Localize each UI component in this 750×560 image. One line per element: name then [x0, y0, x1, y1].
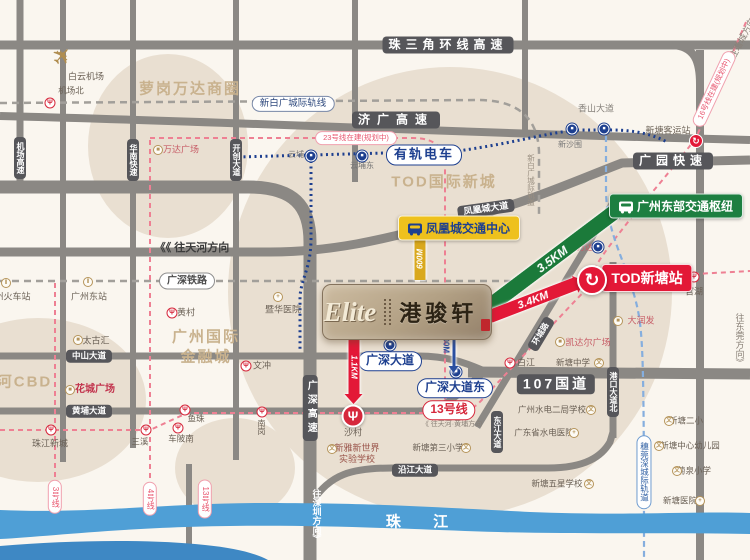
project-logo-en: Elite [324, 297, 377, 328]
poi-gz-shuidian-erju-school: 广州水电二局学校 [518, 405, 586, 416]
rt-mart-icon: ■ [613, 316, 623, 326]
poi-yunpu: 云埔 [288, 150, 304, 160]
pill-guangshen-ave: 广深大道 [358, 351, 422, 371]
bus-icon [408, 223, 422, 233]
zone-gz-intl-finance-city: 广州国际 金融城 [172, 328, 240, 367]
zone-luogang-wanda: 萝岗万达商圈 [139, 79, 241, 99]
tod-xintang-station-icon: ↻ [577, 265, 607, 295]
gz-east-station-icon: ‖ [83, 277, 93, 287]
station-yuzhu: Ψ [180, 405, 191, 416]
wuxing-school-icon: 文 [584, 479, 594, 489]
tram-stop-west: ■ [567, 124, 578, 135]
poi-huangcun: 黄村 [177, 307, 195, 318]
arrow-600m-label: 600M [416, 249, 425, 269]
gz-railway-station-icon: ‖ [1, 278, 11, 288]
pill-line13: 13号线 [422, 400, 475, 420]
juquan-primary-icon: 文 [672, 466, 682, 476]
road-kaichuang-ave: 开创大道 [230, 139, 242, 181]
road-gangkou-ave-north: 港口大道北 [607, 367, 619, 417]
xinya-school-icon: 文 [327, 444, 337, 454]
road-jiguang-expwy: 济广高速 [352, 112, 440, 129]
station-chebeinan: Ψ [173, 423, 184, 434]
taikoo-hui-icon: ■ [73, 335, 83, 345]
station-sanxi: Ψ [141, 425, 152, 436]
poi-wanda-plaza: 万达广场 [163, 144, 199, 155]
road-guangyuan-expwy: 广园快速 [633, 153, 713, 170]
road-xiangshan-ave: 香山大道 [578, 102, 614, 115]
road-zhusanjiao-ring-expwy: 珠三角环线高速 [382, 37, 513, 54]
pill-xinbaiguang-intercity: 新白广城际轨线 [252, 96, 335, 112]
poi-xinshawei: 新沙围 [558, 140, 582, 150]
road-yanjiang-ave: 沿江大道 [392, 464, 438, 477]
xintang-hospital-icon: + [695, 496, 705, 506]
pill-line23-planned: 23号线在建(规划中) [315, 131, 397, 145]
station-jichangbei: Ψ [45, 98, 56, 109]
station-shacun: Ψ [342, 405, 365, 428]
poi-xinya-new-world-school: 新雅新世界 实验学校 [334, 443, 379, 466]
poi-sanxi: 三溪 [131, 437, 148, 448]
xintang-bus-terminal-icon: ↻ [689, 134, 703, 148]
poi-gz-railway-station: 广州火车站 [0, 291, 31, 302]
stop-guangshen-ave: ■ [385, 340, 396, 351]
zone-tianhe-cbd: 天河CBD [0, 372, 52, 392]
pill-line13-south: 13号线 [198, 480, 212, 519]
poi-kaidaer-plaza: 凯达尔广场 [565, 337, 610, 348]
poi-xintang-hospital: 新塘医院 [663, 496, 697, 507]
poi-huacheng-square: 花城广场 [75, 384, 115, 397]
project-logo: Elite 港骏轩 [322, 284, 492, 340]
road-zhongshan-ave: 中山大道 [66, 350, 112, 363]
hub-fenghuangcheng-transport-center: 凤凰城交通中心 [398, 216, 520, 241]
note-line13-direction: 《 往天河·黄埔方向 [422, 419, 482, 429]
road-jichang-expwy: 机场高速 [14, 137, 26, 179]
road-g107: 107国道 [517, 374, 595, 394]
xintang-no2-primary-icon: 文 [664, 416, 674, 426]
kindergarten-icon: 文 [654, 441, 664, 451]
road-huanan-expwy: 华南快速 [127, 139, 139, 181]
poi-xintang-wuxing-school: 新塘五星学校 [531, 479, 582, 490]
tram-stop-east: ■ [599, 124, 610, 135]
poi-xintang-kindergarten: 新塘中心幼儿园 [660, 441, 720, 452]
poi-jihua-hospital: 暨华医院 [265, 304, 301, 315]
arrow-600m: 600M [415, 238, 426, 280]
poi-gz-east-station: 广州东站 [71, 291, 107, 302]
tram-stop-yunpu: ■ [306, 151, 317, 162]
hub-fenghuangcheng-transport-center-label: 凤凰城交通中心 [426, 220, 510, 237]
hub-gz-east-transport-hub-label: 广州东部交通枢纽 [637, 198, 733, 215]
pill-suiwanshen-intercity: 穗莞深城际轨道 [636, 435, 651, 509]
hub-tod-xintang-station-label: TOD新塘站 [611, 268, 682, 288]
poi-baiyun-airport: 白云机场 [68, 71, 104, 82]
poi-jichangbei: 机场北 [58, 86, 84, 97]
poi-yunpudong: 云埔东 [350, 161, 374, 171]
poi-taikoo-hui: 太古汇 [82, 335, 109, 346]
huacheng-square-icon: ■ [65, 385, 75, 395]
pill-guangshen-railway: 广深铁路 [159, 273, 215, 290]
wanda-plaza-icon: ■ [153, 145, 163, 155]
kaidaer-plaza-icon: ■ [555, 337, 565, 347]
logo-seal [481, 319, 490, 331]
jihua-hospital-icon: + [273, 292, 283, 302]
station-huangcun: Ψ [167, 308, 178, 319]
poi-xintang-middle-school: 新塘中学 [556, 358, 590, 369]
hub-tod-xintang-station: TOD新塘站 [601, 264, 692, 292]
poi-rt-mart: 大润发 [627, 315, 654, 326]
station-wenchong: Ψ [241, 361, 252, 372]
poi-guangdong-shuidian-hospital: 广东省水电医院 [514, 428, 574, 439]
poi-yuzhu: 鱼珠 [187, 414, 204, 425]
pill-line3: 3号线 [48, 480, 62, 514]
dir-to-dongguan: 往东莞方向》 [734, 313, 747, 367]
zone-tod-intl-newtown: TOD国际新城 [391, 172, 496, 192]
shuidian-erju-school-icon: 文 [586, 405, 596, 415]
pill-line4: 4号线 [143, 482, 157, 516]
poi-shacun: 沙村 [344, 427, 362, 438]
poi-wenchong: 文冲 [253, 360, 271, 371]
xintang-no3-primary-icon: 文 [461, 443, 471, 453]
dir-to-shenzhen: 往深圳方向》 [311, 489, 324, 543]
poi-xintang-no3-primary: 新塘第三小学 [412, 443, 463, 454]
poi-xintang-bus-terminal: 新塘客运站 [645, 125, 690, 136]
poi-xintang-no2-primary: 新塘二小 [669, 416, 703, 427]
pill-guangshen-ave-east: 广深大道东 [417, 378, 493, 398]
poi-chebeinan: 车陂南 [168, 434, 194, 445]
road-guangshen-expwy: 广深高速 [303, 375, 318, 441]
road-dongjiang-ave: 东江大道 [491, 411, 503, 453]
station-nangang: Ψ [257, 407, 268, 418]
xintang-middle-school-icon: 文 [594, 358, 604, 368]
hub-gz-east-transport-hub: 广州东部交通枢纽 [609, 194, 743, 219]
arrow-1-1km-label: 1.1KM [350, 355, 359, 379]
river-label: 珠 江 [386, 511, 462, 532]
location-map: 珠 江 Elite 港骏轩 萝岗万达商圈TOD国际新城广州国际 金融城天河CBD… [0, 0, 750, 560]
dir-to-tianhe: 《《 往天河方向 [155, 239, 230, 255]
station-baijiang: Ψ [505, 358, 516, 369]
poi-nangang: 南岗 [256, 419, 266, 435]
note-xinbaiguang-rail: 新白广城际轨道 [526, 154, 537, 207]
poi-zhujiang-newtown: 珠江新城 [32, 438, 68, 449]
poi-juquan-primary: 菊泉小学 [677, 466, 711, 477]
tram-stop-yunpudong: ■ [357, 151, 368, 162]
bus-icon [619, 201, 633, 211]
project-logo-cn: 港骏轩 [399, 296, 477, 328]
station-zhujiang-newtown: Ψ [46, 425, 57, 436]
poi-baijiang: 白江 [517, 357, 535, 368]
pill-tram: 有轨电车 [386, 145, 462, 166]
shuidian-hospital-icon: + [569, 428, 579, 438]
station-xintang-wanda: ■ [593, 242, 604, 253]
road-huangpu-ave: 黄埔大道 [66, 405, 112, 418]
logo-divider [384, 299, 391, 325]
arrow-1-1km: 1.1KM [349, 339, 360, 395]
